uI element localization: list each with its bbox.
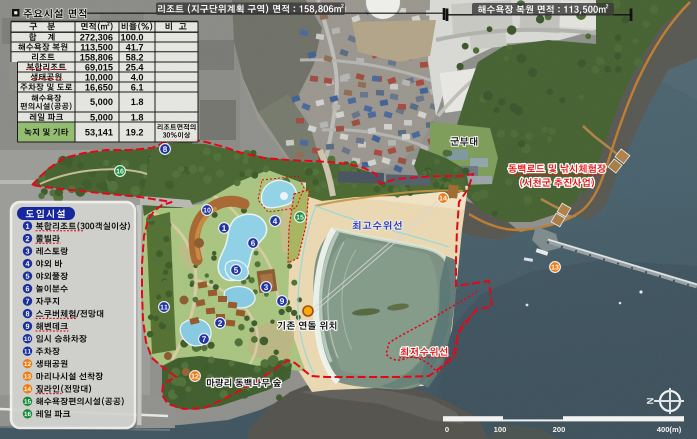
svg-text:1.8: 1.8 (131, 97, 144, 107)
svg-text:25.4: 25.4 (126, 62, 145, 72)
svg-text:113,500: 113,500 (80, 42, 113, 52)
svg-text:400(m): 400(m) (657, 425, 682, 434)
svg-text:10,000: 10,000 (85, 72, 113, 82)
svg-text:53,141: 53,141 (85, 127, 113, 137)
svg-text:5,000: 5,000 (90, 112, 113, 122)
svg-text:6.1: 6.1 (131, 82, 144, 92)
svg-text:100.0: 100.0 (121, 32, 144, 42)
svg-text:100: 100 (494, 425, 507, 434)
svg-text:19.2: 19.2 (126, 127, 144, 137)
svg-text:5,000: 5,000 (90, 97, 113, 107)
svg-text:41.7: 41.7 (126, 42, 144, 52)
svg-text:58.2: 58.2 (126, 52, 144, 62)
svg-text:158,806: 158,806 (80, 52, 113, 62)
svg-text:200: 200 (553, 425, 566, 434)
svg-text:4.0: 4.0 (131, 72, 144, 82)
svg-text:0: 0 (445, 425, 449, 434)
svg-text:272,306: 272,306 (80, 32, 113, 42)
svg-text:69,015: 69,015 (85, 62, 113, 72)
svg-text:1.8: 1.8 (131, 112, 144, 122)
svg-text:16,650: 16,650 (85, 82, 113, 92)
